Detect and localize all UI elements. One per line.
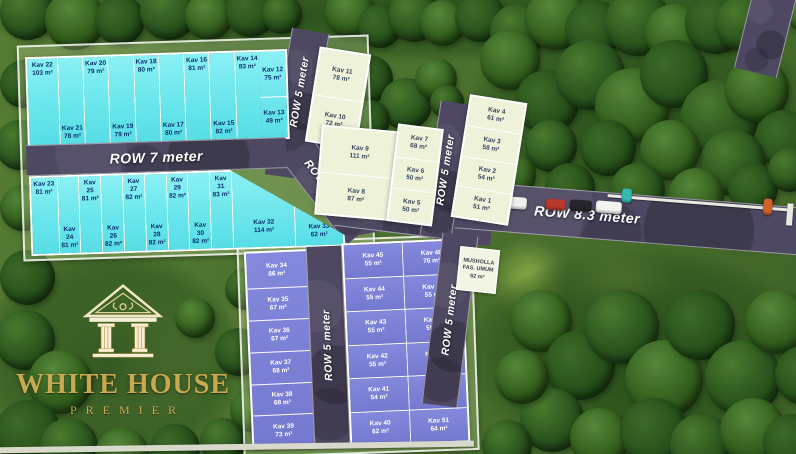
plot-area: 64 m² xyxy=(428,425,449,434)
plot-label: Kav 25 81 m² xyxy=(80,179,100,204)
plot-area: 68 m² xyxy=(270,367,291,376)
plot: Kav 26 82 m² xyxy=(101,175,125,252)
plot: Kav 31 83 m² xyxy=(210,172,233,249)
plot-label: Kav 30 82 m² xyxy=(191,221,211,246)
plot-area: 73 m² xyxy=(273,430,294,439)
plot: Kav 35 67 m² xyxy=(247,287,308,321)
tree-icon xyxy=(495,350,549,404)
plot-column-split: Kav 12 75 m² Kav 13 49 m² xyxy=(259,51,288,138)
plot: Kav 13 49 m² xyxy=(261,98,288,138)
plot-area: 86 m² xyxy=(266,270,287,279)
plot-area: 62 m² xyxy=(309,231,330,240)
plot: Kav 34 86 m² xyxy=(246,251,308,290)
plot-area: 81 m² xyxy=(60,242,79,251)
plot: Kav 16 81 m² xyxy=(184,53,212,140)
block-north-row: Kav 22 103 m² Kav 21 78 m² Kav 20 79 m² xyxy=(25,49,290,147)
plot-label: Kav 23 81 m² xyxy=(32,180,56,197)
plot: Kav 32 114 m² xyxy=(231,170,295,248)
road-label: ROW 7 meter xyxy=(109,147,203,166)
plot-area: 55 m² xyxy=(363,260,384,269)
plot: Kav 6 50 m² xyxy=(392,157,438,194)
plot-label: Kav 20 79 m² xyxy=(84,60,107,77)
plot-label: Kav 29 82 m² xyxy=(168,176,188,201)
plot: Kav 20 79 m² xyxy=(83,57,111,144)
plot: Kav 11 78 m² xyxy=(314,49,369,102)
plot-area: 67 m² xyxy=(269,335,290,344)
plot-area: 50 m² xyxy=(405,174,423,184)
plot-label: Kav 27 82 m² xyxy=(124,178,144,203)
plot: Kav 8 87 m² xyxy=(316,173,395,219)
plot: Kav 38 68 m² xyxy=(252,382,313,416)
plot-kav: Kav 29 xyxy=(168,176,187,193)
plot-label: Kav 17 80 m² xyxy=(162,121,185,138)
plot-kav: Kav 28 xyxy=(147,223,166,240)
plot: Kav 9 111 m² xyxy=(320,127,400,180)
plot-area: 54 m² xyxy=(477,174,495,185)
plot-kav: Kav 27 xyxy=(124,178,143,195)
plot: Kav 27 82 m² xyxy=(123,175,147,252)
road-label: ROW 5 meter xyxy=(440,284,461,356)
plot-area: 55 m² xyxy=(366,327,387,336)
block-central-row: Kav 23 81 m² Kav 24 81 m² Kav 25 81 m² xyxy=(29,166,345,256)
plot-area: 83 m² xyxy=(212,191,231,200)
site-plan-scene: ROW 5 meter ROW 7 meter ROW 7 meter ROW … xyxy=(0,0,796,454)
musholla-plot: MUSHOLLA FAS. UMUM 62 m² xyxy=(456,246,500,294)
plot-kav: Kav 24 xyxy=(60,225,79,242)
car-black-icon xyxy=(569,199,592,212)
plot-area: 67 m² xyxy=(268,304,289,313)
block-south-col-a: Kav 34 86 m² Kav 35 67 m² Kav 36 67 m² K… xyxy=(244,249,317,450)
plot: Kav 23 81 m² xyxy=(31,177,60,254)
plot-area: 68 m² xyxy=(272,399,293,408)
plot-area: 49 m² xyxy=(264,117,285,126)
plot: Kav 15 82 m² xyxy=(210,53,238,140)
plot-label: Kav 22 103 m² xyxy=(28,61,56,78)
plot-area: 51 m² xyxy=(472,203,490,214)
plot: Kav 44 55 m² xyxy=(345,276,404,312)
plot: Kav 25 81 m² xyxy=(79,176,103,253)
plot-area: 82 m² xyxy=(104,240,123,249)
plot-area: 50 m² xyxy=(402,205,420,215)
plot: Kav 51 64 m² xyxy=(409,408,468,443)
car-white-2-icon xyxy=(595,200,622,214)
plot-kav: Kav 25 xyxy=(80,179,99,196)
plot-column-list: Kav 22 103 m² Kav 21 78 m² Kav 20 79 m² xyxy=(27,52,262,145)
plot: Kav 30 82 m² xyxy=(188,173,212,250)
plot: Kav 37 68 m² xyxy=(250,351,311,385)
plot-area: 78 m² xyxy=(61,132,84,141)
plot-column-list: Kav 45 55 m² Kav 44 55 m² Kav 43 55 m² K… xyxy=(344,243,411,445)
plot: Kav 45 55 m² xyxy=(344,243,403,279)
plot: Kav 22 103 m² xyxy=(27,58,61,145)
plot-area: 87 m² xyxy=(347,195,365,205)
plot-area: 82 m² xyxy=(213,128,236,137)
plot-area: 79 m² xyxy=(85,68,108,77)
plot-label: Kav 15 82 m² xyxy=(213,119,236,136)
plot-area: 83 m² xyxy=(236,63,259,72)
plot: Kav 5 50 m² xyxy=(388,189,433,225)
plot-area: 114 m² xyxy=(253,226,274,235)
plot-area: 82 m² xyxy=(124,194,143,203)
post-orange-icon xyxy=(763,198,773,215)
plot: Kav 14 83 m² xyxy=(235,52,262,139)
plot: Kav 29 82 m² xyxy=(166,173,190,250)
plot-label: Kav 28 82 m² xyxy=(147,223,167,248)
plot-area: 82 m² xyxy=(148,239,167,248)
plot: Kav 43 55 m² xyxy=(347,310,406,346)
plot-area: 55 m² xyxy=(367,360,388,369)
plot-area: 80 m² xyxy=(135,66,158,75)
plot: Kav 19 79 m² xyxy=(108,56,136,143)
logo-subtitle: PREMIER xyxy=(14,403,232,418)
plot: Kav 12 75 m² xyxy=(259,51,286,98)
plot: Kav 21 78 m² xyxy=(58,57,86,144)
plot-label: Kav 18 80 m² xyxy=(135,58,158,75)
plot-area: 55 m² xyxy=(364,293,385,302)
logo-title: WHITE HOUSE xyxy=(14,369,232,401)
plot-area: 75 m² xyxy=(262,74,283,83)
plot: Kav 41 54 m² xyxy=(349,377,408,413)
white-house-logo-icon xyxy=(81,283,165,364)
plot-label: Kav 19 79 m² xyxy=(112,123,135,140)
plot-area: 68 m² xyxy=(409,143,427,153)
plot: Kav 17 80 m² xyxy=(159,54,187,141)
plot-area: 111 m² xyxy=(349,152,370,162)
guardrail-end xyxy=(786,203,794,225)
plot-label: Kav 16 81 m² xyxy=(185,57,208,74)
plot: Kav 40 62 m² xyxy=(351,410,410,445)
plot-area: 62 m² xyxy=(370,427,391,436)
plot: Kav 36 67 m² xyxy=(249,319,310,353)
road-label: ROW 5 meter xyxy=(320,309,335,381)
plot: Kav 18 80 m² xyxy=(134,55,162,142)
dumpster-teal-icon xyxy=(621,188,632,203)
plot-label: Kav 21 78 m² xyxy=(61,124,84,141)
plot-area: 82 m² xyxy=(191,237,210,246)
plot-area: 79 m² xyxy=(112,131,135,140)
plot-kav: Kav 31 xyxy=(211,175,230,192)
plot: Kav 28 82 m² xyxy=(145,174,169,251)
plot-area: 82 m² xyxy=(168,192,187,201)
plot-area: 81 m² xyxy=(32,188,56,197)
plot-label: Kav 26 82 m² xyxy=(104,224,124,249)
plot-area: 54 m² xyxy=(368,394,389,403)
white-house-premier-logo: WHITE HOUSE PREMIER xyxy=(14,283,232,418)
plot-label: Kav 31 83 m² xyxy=(211,175,231,200)
plot-area: 58 m² xyxy=(482,144,500,155)
plot: Kav 7 68 m² xyxy=(396,126,442,163)
plot-kav: Kav 30 xyxy=(191,221,210,238)
plot-area: 81 m² xyxy=(81,195,100,204)
plot-label: Kav 14 83 m² xyxy=(236,55,259,72)
plot-label: Kav 24 81 m² xyxy=(60,225,80,250)
plot-area: 80 m² xyxy=(162,129,185,138)
plot-area: 103 m² xyxy=(29,69,57,78)
plot-area: 81 m² xyxy=(186,65,209,74)
plot: Kav 42 55 m² xyxy=(348,343,407,379)
plot-column-list: Kav 23 81 m² Kav 24 81 m² Kav 25 81 m² xyxy=(31,172,233,254)
car-red-icon xyxy=(545,198,566,211)
plot-kav: Kav 26 xyxy=(104,224,123,241)
plot: Kav 24 81 m² xyxy=(57,177,81,254)
